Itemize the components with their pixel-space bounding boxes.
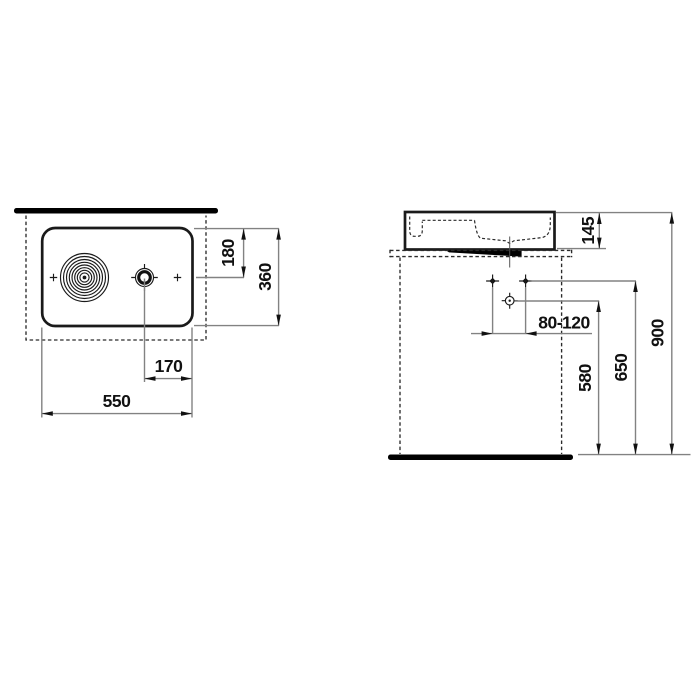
centerline-cross-right xyxy=(174,274,181,281)
drawing-svg: 180 360 170 550 xyxy=(0,0,700,700)
drain-outlet xyxy=(61,254,109,302)
supply-connection-left xyxy=(486,275,499,288)
basin-body-outline xyxy=(405,212,555,250)
dim-label-580: 580 xyxy=(575,363,595,391)
supply-connection-right xyxy=(519,275,532,288)
basin-hidden-contour xyxy=(410,217,551,244)
basin-rim-outline xyxy=(42,228,192,326)
front-view: 80-120 145 580 650 900 xyxy=(388,212,691,460)
dim-label-650: 650 xyxy=(611,353,631,381)
top-view-arrowheads xyxy=(42,229,281,416)
dim-label-80-120: 80-120 xyxy=(538,313,590,333)
dim-label-180: 180 xyxy=(218,238,238,266)
dim-label-170: 170 xyxy=(155,356,183,376)
dim-label-900: 900 xyxy=(648,318,668,346)
technical-drawing: 180 360 170 550 xyxy=(0,0,700,700)
waste-outlet xyxy=(446,250,522,256)
dim-label-145: 145 xyxy=(578,216,598,244)
floor-bar xyxy=(388,455,573,461)
dim-label-550: 550 xyxy=(103,391,131,411)
centerline-cross-left xyxy=(50,274,57,281)
top-view-dimension-lines xyxy=(42,229,279,418)
wall-edge-bar xyxy=(14,208,218,214)
dim-label-360: 360 xyxy=(255,262,275,290)
top-view: 180 360 170 550 xyxy=(14,208,281,418)
